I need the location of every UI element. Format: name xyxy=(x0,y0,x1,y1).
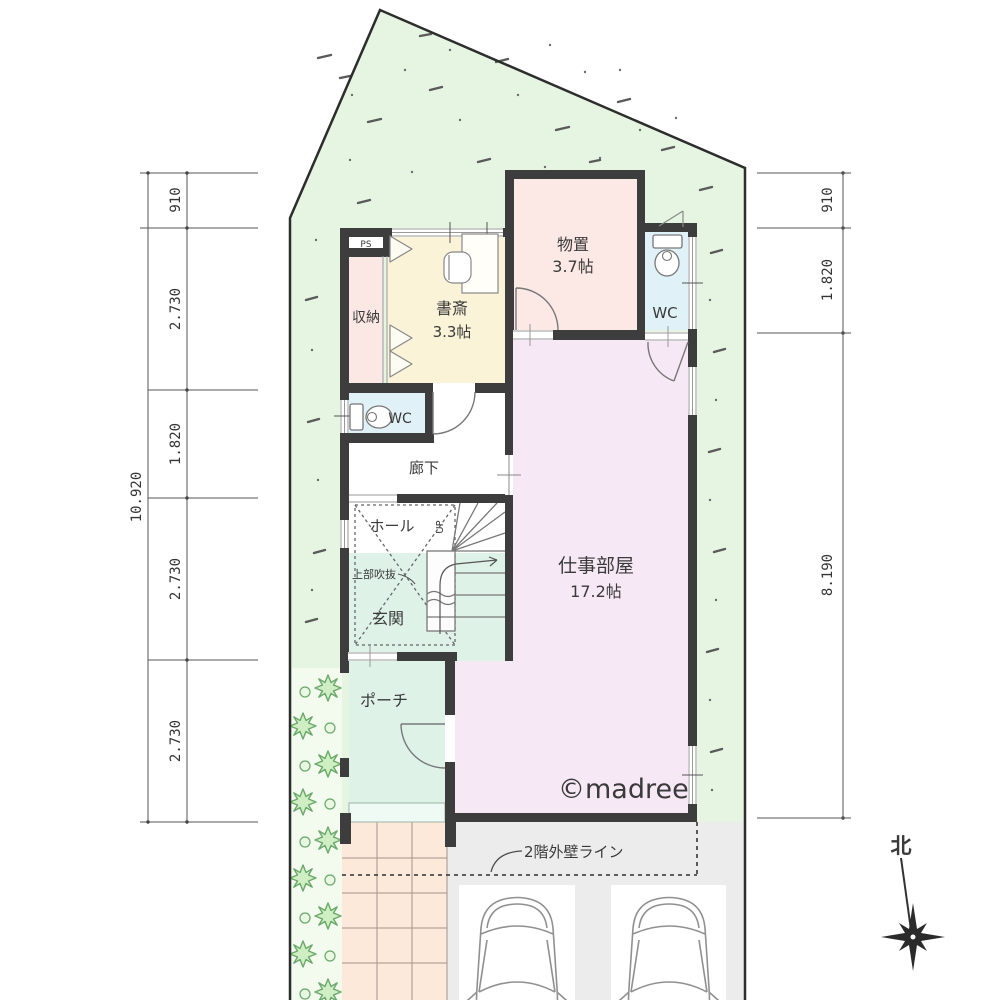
window xyxy=(688,367,697,415)
dim-left-total: 10.920 xyxy=(129,472,145,523)
floor-plan-drawing: 物置 3.7帖 WC 収納 書斎 3.3帖 PS WC 廊下 ホール UP 上部… xyxy=(0,0,1000,1000)
dimension-lines-left xyxy=(140,173,258,822)
closet-label: 収納 xyxy=(352,310,380,326)
dim-right-2: 8.190 xyxy=(820,554,836,596)
dim-left-1: 2.730 xyxy=(168,288,184,330)
north-label: 北 xyxy=(891,834,912,858)
porch-step xyxy=(349,803,445,822)
void-label: 上部吹抜 xyxy=(352,567,396,581)
pipe-space-label: PS xyxy=(360,240,371,250)
dim-left-3: 2.730 xyxy=(168,558,184,600)
floor-plan-canvas: 物置 3.7帖 WC 収納 書斎 3.3帖 PS WC 廊下 ホール UP 上部… xyxy=(0,0,1000,1000)
dim-left-4: 2.730 xyxy=(168,720,184,762)
storage-area-label: 3.7帖 xyxy=(552,257,593,276)
workroom-area-label: 17.2帖 xyxy=(570,582,622,601)
chair-icon xyxy=(444,252,471,283)
corridor-label: 廊下 xyxy=(409,459,439,477)
dimension-lines-right xyxy=(757,173,851,818)
storage-label: 物置 xyxy=(557,235,589,254)
dim-left-2: 1.820 xyxy=(168,423,184,465)
second-floor-line-label: 2階外壁ライン xyxy=(524,843,624,861)
porch-label: ポーチ xyxy=(360,691,408,710)
workroom-label: 仕事部屋 xyxy=(558,555,634,577)
dim-left-0: 910 xyxy=(168,187,184,212)
study-area-label: 3.3帖 xyxy=(433,323,472,341)
study-label: 書斎 xyxy=(436,299,468,318)
toilet-icon xyxy=(350,404,392,430)
tiled-walkway xyxy=(342,822,447,1000)
watermark: ©madree xyxy=(558,774,689,805)
wc-north-label: WC xyxy=(652,304,677,322)
window xyxy=(340,520,349,548)
room-fill-storage xyxy=(514,179,637,330)
room-fill-porch xyxy=(349,661,445,803)
dim-right-0: 910 xyxy=(820,187,836,212)
shrub-border xyxy=(290,668,342,1000)
dim-right-1: 1.820 xyxy=(820,259,836,301)
hall-label: ホール xyxy=(369,517,414,535)
entrance-label: 玄関 xyxy=(372,609,404,628)
north-compass-icon xyxy=(881,858,945,971)
stairs-up-label: UP xyxy=(435,520,446,533)
wc-west-label: WC xyxy=(388,411,412,427)
